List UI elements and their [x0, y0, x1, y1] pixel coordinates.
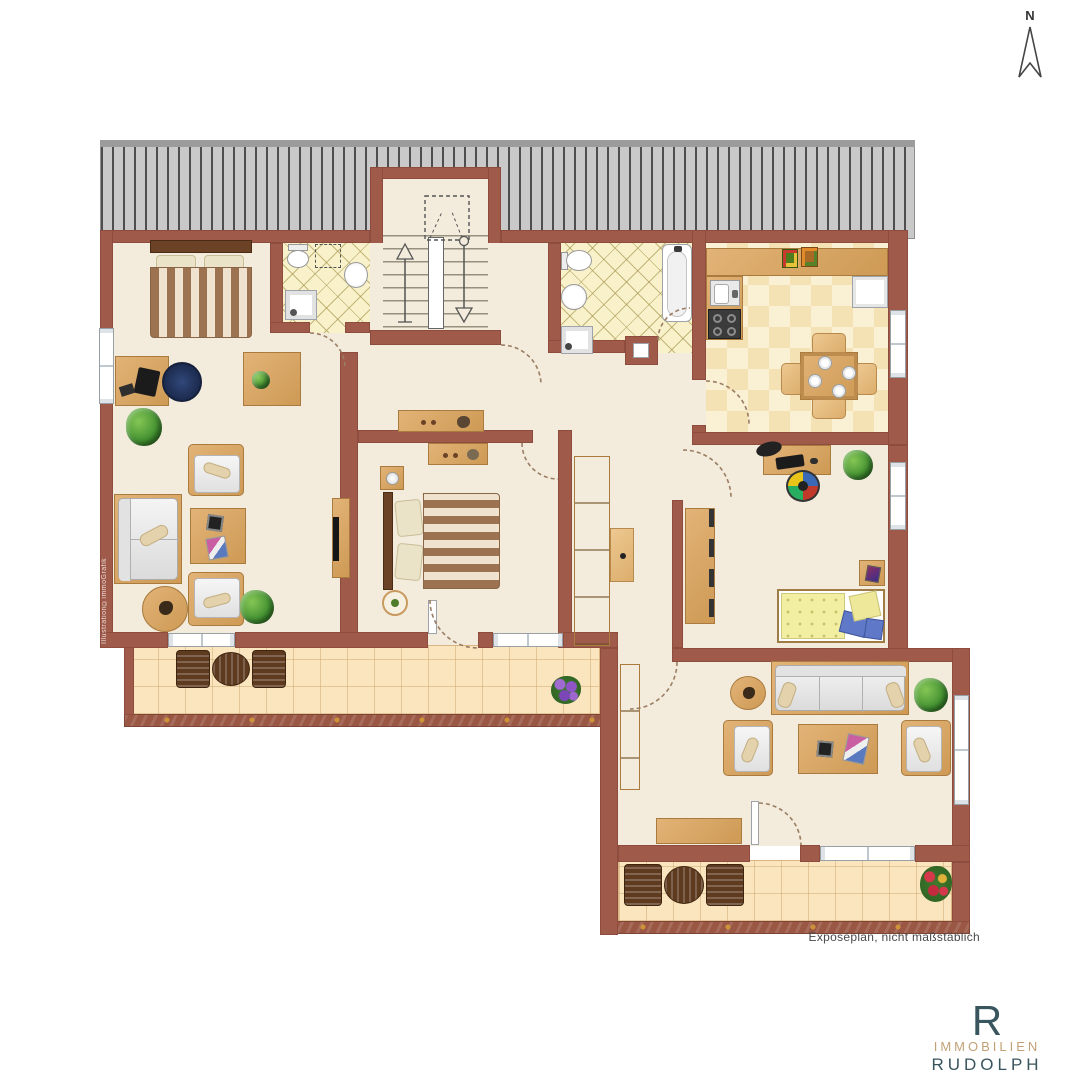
armchair-icon: [188, 572, 244, 626]
window-living-right: [954, 695, 969, 805]
armchair-icon: [901, 720, 951, 776]
deco-item: [457, 416, 470, 428]
bathtub-icon: [662, 244, 692, 322]
balcony-left-rim: [124, 645, 134, 715]
wall-living-bottom-c: [915, 845, 970, 862]
bed2-headboard: [383, 492, 393, 590]
dining-chair: [812, 333, 846, 353]
dining-chair: [857, 363, 877, 395]
wall-kitchen-left-a: [692, 230, 706, 380]
balcony-chair-icon: [624, 864, 662, 906]
stairwell-landing: [383, 179, 488, 235]
wall-corridor-left: [600, 648, 618, 935]
sink-icon: [344, 262, 368, 288]
bath2-niche: [633, 343, 649, 358]
faucet-icon: [732, 290, 738, 298]
side-table-item: [159, 601, 173, 615]
wall-bottom-c: [478, 632, 493, 648]
company-logo: R IMMOBILIEN RUDOLPH: [912, 998, 1062, 1075]
plant-icon: [252, 371, 270, 389]
deco-item: [467, 449, 479, 460]
door-leaf-living-balcony: [751, 801, 759, 845]
plate: [842, 366, 856, 380]
burner: [727, 327, 736, 336]
wall-bath2-left: [548, 243, 561, 353]
tv-icon: [333, 517, 339, 561]
window-kitchen: [890, 310, 906, 378]
compass: N: [1012, 8, 1048, 86]
wall-bath1-bottom-b: [345, 322, 370, 333]
plant-icon: [914, 678, 948, 712]
plate: [832, 384, 846, 398]
footer-note: Exposéplan, nicht maßstäblich: [700, 930, 980, 944]
window-childroom: [890, 462, 906, 530]
coffee-table-1: [190, 508, 246, 564]
stove-icon: [708, 309, 741, 339]
stool-deco: [391, 599, 399, 607]
stair-divider: [428, 237, 444, 329]
sofa3-seam: [819, 677, 820, 712]
roof-ridge: [100, 140, 915, 147]
bed-single: [777, 589, 885, 643]
corridor-shelf: [610, 528, 634, 582]
dining-chair: [812, 399, 846, 419]
sink-basin: [714, 284, 729, 304]
toilet-icon: [566, 250, 592, 271]
sofa3-pillow: [776, 680, 798, 709]
office-chair-1: [162, 362, 202, 402]
cutting-board-2: [801, 247, 818, 267]
dresser-bedroom: [428, 443, 488, 465]
balcony-chair-icon: [706, 864, 744, 906]
bookshelf-child: [685, 508, 715, 624]
wall-hall-top: [370, 330, 501, 345]
bed-double-1: [150, 240, 252, 338]
armchair-icon: [723, 720, 773, 776]
wardrobe-icon: [620, 664, 640, 790]
wall-kitchen-bottom: [692, 432, 908, 445]
logo-line2: RUDOLPH: [931, 1056, 1042, 1075]
side-table-round: [730, 676, 766, 710]
knob: [421, 420, 426, 425]
illustrator-watermark: Illustration©immoGrafik: [101, 560, 114, 644]
washer-slot-dashed: [315, 244, 341, 268]
sofa3-pillow: [884, 680, 906, 709]
sofa1-back: [119, 499, 131, 581]
wall-balcony2-right: [952, 862, 970, 922]
stool-round: [382, 590, 408, 616]
bed3-pillow-yellow: [849, 590, 882, 621]
balcony-table: [212, 652, 250, 686]
sofa-icon: [775, 665, 905, 711]
side-table-round: [142, 586, 188, 632]
mouse-icon: [810, 458, 818, 464]
knob: [620, 553, 626, 559]
burner: [713, 327, 722, 336]
game-box: [816, 740, 833, 757]
shelf-edge: [709, 509, 714, 625]
logo-monogram: R: [972, 998, 1002, 1044]
window-leftroom-balcony: [168, 633, 235, 647]
kitchen-appliance: [852, 276, 888, 308]
window-bedroom-balcony: [493, 633, 563, 647]
desk1-papers: [119, 383, 135, 397]
corridor-opening: [618, 648, 672, 662]
wall-bath1-bottom-a: [270, 322, 310, 333]
sink-icon: [561, 284, 587, 310]
balcony-left-railing: [124, 714, 618, 727]
balcony-chair-icon: [252, 650, 286, 688]
stairwell-wall-top: [370, 167, 501, 179]
sofa3-seam: [862, 677, 863, 712]
bed3-blanket-blue: [864, 618, 885, 640]
wall-child-left: [672, 500, 683, 648]
deco-item: [865, 565, 882, 583]
kitchen-sink-icon: [710, 280, 740, 306]
bed1-headboard: [150, 240, 252, 253]
knob: [431, 420, 436, 425]
wardrobe-icon: [574, 456, 610, 646]
bed2-pillow-top: [394, 499, 424, 538]
sofa-icon: [118, 498, 178, 580]
floorplan-canvas: N Illustration©immoGrafik Exposéplan, ni…: [0, 0, 1078, 1080]
burner: [713, 314, 722, 323]
bed2-pillow-bottom: [394, 543, 424, 582]
bed1-duvet: [150, 267, 252, 338]
side-table-item: [743, 687, 755, 699]
wall-bath1-left: [270, 243, 283, 333]
logo-line1: IMMOBILIEN: [934, 1040, 1041, 1054]
magazines: [842, 733, 869, 765]
toilet-icon: [287, 250, 309, 268]
faucet-icon: [674, 246, 682, 252]
coffee-table-2: [798, 724, 878, 774]
sideboard-hall: [398, 410, 484, 432]
wall-bedroom-right: [558, 430, 572, 648]
bed3-mattress-yellow: [781, 593, 845, 639]
wall-bottom-b: [235, 632, 428, 648]
shower-drain: [290, 309, 297, 316]
bed2-duvet: [423, 493, 500, 589]
shower-head: [565, 343, 572, 350]
wall-living-top: [672, 648, 970, 662]
laptop-icon: [134, 367, 161, 397]
roof-band: [100, 140, 915, 239]
plant-icon: [843, 450, 873, 480]
door-leaf-bedroom-balcony: [428, 600, 437, 634]
knob: [453, 453, 458, 458]
wall-living-bottom-a: [618, 845, 750, 862]
knob: [443, 453, 448, 458]
balcony-chair-icon: [176, 650, 210, 688]
armchair-icon: [188, 444, 244, 496]
dining-chair: [781, 363, 801, 395]
burner: [727, 314, 736, 323]
desk-1: [115, 356, 169, 406]
plate: [818, 356, 832, 370]
sideboard-living: [656, 818, 742, 844]
chair2-center: [798, 481, 808, 491]
bed-double-2: [383, 492, 501, 590]
window-living-balcony: [820, 846, 915, 861]
plate: [808, 374, 822, 388]
keyboard-icon: [775, 454, 804, 470]
nightstand-child: [859, 560, 885, 586]
bathtub-inner: [667, 251, 687, 317]
wall-living-bottom-b: [800, 845, 820, 862]
balcony-table: [664, 866, 704, 904]
sofa3-back: [776, 666, 906, 677]
shower-icon: [561, 326, 593, 354]
nightstand: [380, 466, 404, 490]
lamp-icon: [386, 472, 399, 485]
north-arrow-icon: [1012, 23, 1048, 83]
office-chair-2: [786, 470, 820, 502]
cutting-board-1: [782, 249, 798, 268]
dresser-hall: [243, 352, 301, 406]
shower-icon: [285, 290, 317, 320]
plant-icon: [126, 408, 162, 446]
compass-label: N: [1025, 8, 1034, 23]
window-leftroom: [99, 328, 114, 404]
magazines: [205, 535, 229, 560]
plant-icon: [240, 590, 274, 624]
game-box: [206, 514, 224, 532]
sofa1-pillow: [138, 523, 171, 549]
